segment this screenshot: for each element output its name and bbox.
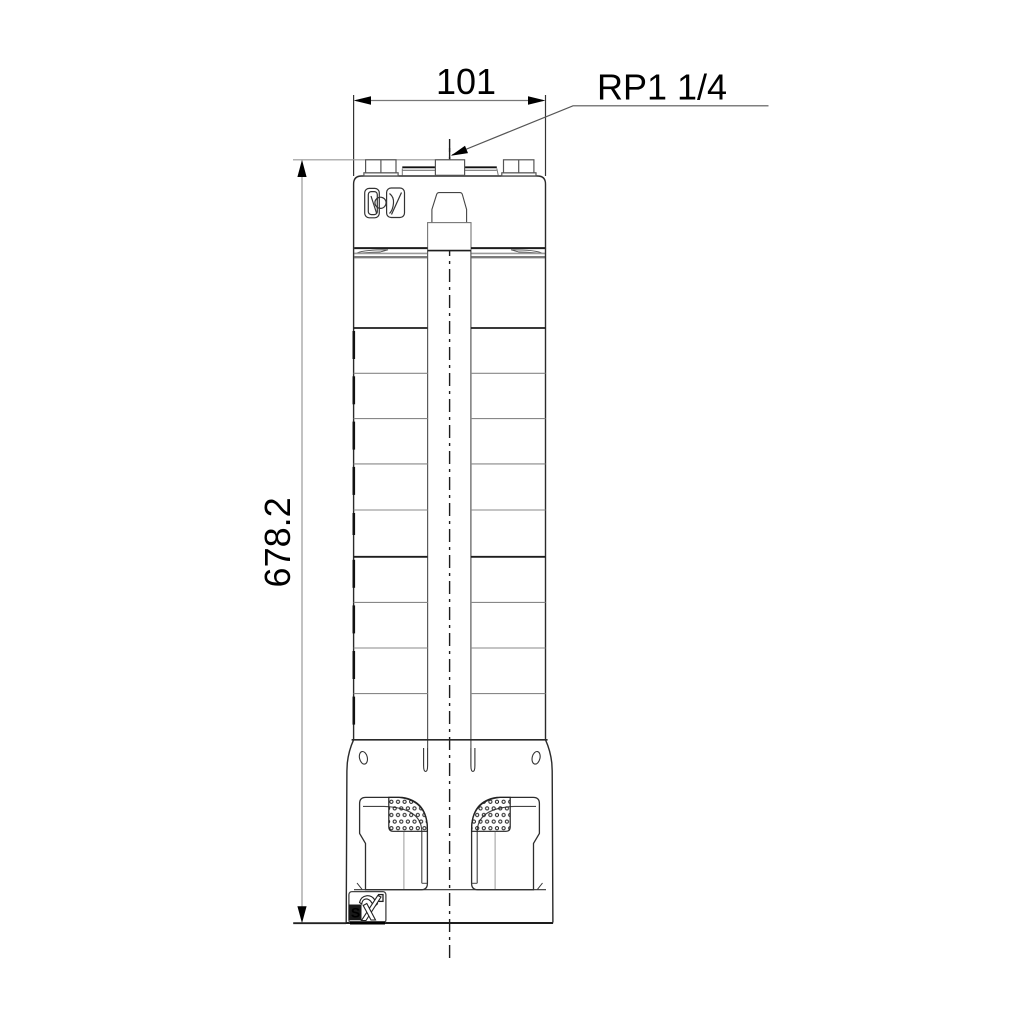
svg-text:RP1 1/4: RP1 1/4 xyxy=(597,67,727,108)
svg-text:101: 101 xyxy=(436,61,496,102)
svg-text:S: S xyxy=(351,905,360,921)
svg-text:678.2: 678.2 xyxy=(257,497,298,587)
